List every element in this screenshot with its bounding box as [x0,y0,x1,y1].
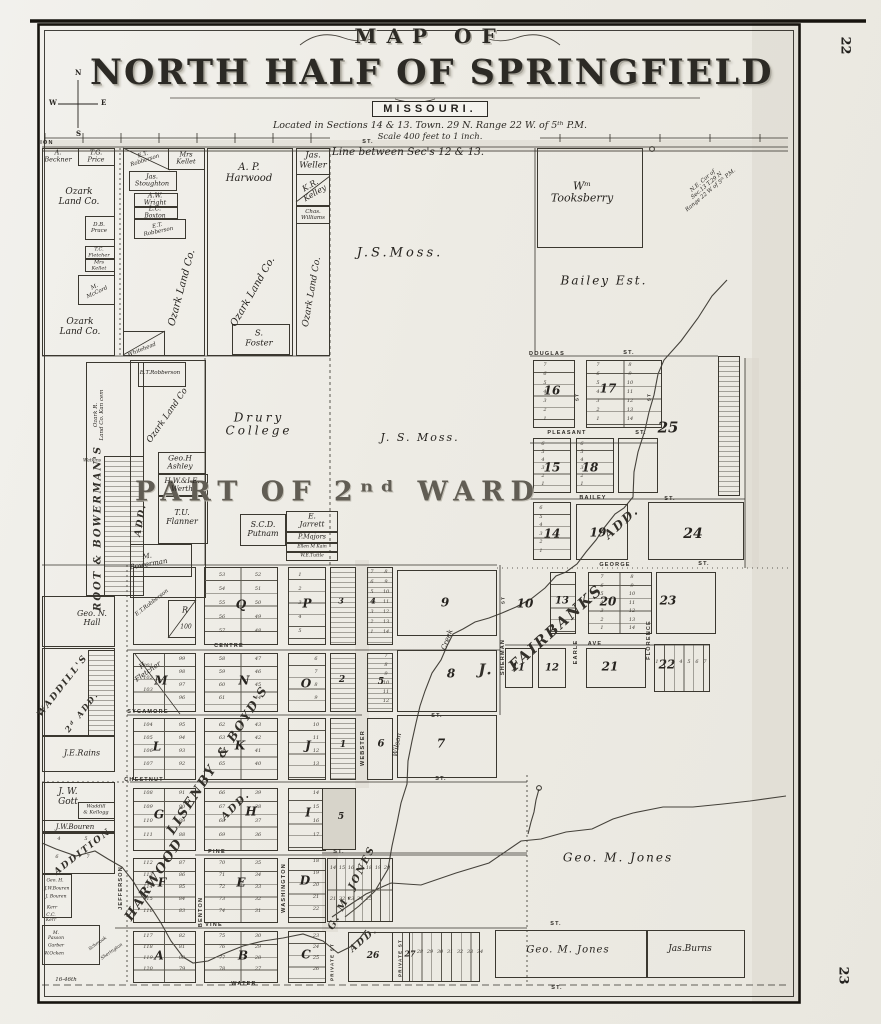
block-label: B [238,949,248,962]
lot-number: 30 [255,934,261,940]
street-label: VINE [205,922,223,928]
block-outline [204,858,278,923]
lot-number: 6 [600,584,603,590]
lot-number: 1 [655,660,658,666]
lot-number: 5 [580,450,583,456]
lot-number: 2 [600,618,603,624]
block-label: I [305,806,311,819]
block-label: 14 [544,527,561,540]
lot-number: 10 [383,590,389,596]
lot-number: 5 [596,381,599,387]
lot-number: 25 [313,956,319,962]
lot-number: 29 [255,945,261,951]
lot-number: 67 [219,805,225,811]
street-label: CHESTNUT [124,777,164,783]
lot-number: 2 [539,540,542,546]
lot-number: 14 [313,791,319,797]
street-label: SYCAMORE [127,709,168,715]
lot-number: 3 [580,466,583,472]
block-label: 9 [441,596,449,609]
lot-number: 4 [539,523,542,529]
lot-number: 24 [357,897,363,903]
block-label: 1 [340,740,346,750]
lot-number: 72 [219,885,225,891]
owner-label: J.W.Bouren [56,824,95,832]
lot-number: 6 [370,580,373,586]
map-title-block: MAP OF NORTH HALF OF SPRINGFIELD MISSOUR… [90,24,770,142]
lot-number: 10 [383,681,389,687]
lot-number: 11 [629,601,635,607]
lot-number: 23 [313,934,319,940]
owner-label: C.C. Kerr [46,913,56,923]
lot-number: 59 [219,670,225,676]
owner-label: S. Foster [245,329,272,348]
compass-south-label: S [76,129,81,138]
page-number-top: 22 [838,36,853,54]
owner-label: T.U. Flanner [166,509,198,527]
street-label: AVE [588,641,603,647]
lot-number: 3 [298,601,301,607]
block-label: J [305,739,311,752]
owner-label: Jas. Stoughton [135,174,169,189]
lot-number: 9 [630,584,633,590]
lot-number: 80 [179,956,185,962]
street-label: ST [574,393,579,401]
lot-number: 38 [255,805,261,811]
lot-number: 55 [219,601,225,607]
lot-number: 77 [219,956,225,962]
block-outline [397,650,497,712]
lot-number: 105 [143,736,153,742]
lot-number: 12 [383,699,389,705]
lot-number: 103 [143,688,153,694]
owner-label: L.C. Boxton [144,206,165,219]
lot-number: 4 [541,458,544,464]
lot-number: 109 [143,805,153,811]
lot-number: 115 [143,897,153,903]
lot-number: 6 [55,855,58,861]
lot-number: 13 [629,618,635,624]
lot-number: 5 [541,450,544,456]
block-label: 3 [338,597,344,606]
owner-label: T.G. Price [87,150,104,165]
owner-label: Bailey Est. [561,274,648,287]
block-label: 10 [517,597,534,610]
block-label: A [154,949,163,962]
owner-label: Ozark R. Land Co. Kan cem [93,390,105,441]
lot-number: 6 [543,372,546,378]
block-outline [397,715,497,778]
owner-label: Ellen M Kain [297,544,327,549]
lot-number: 46 [255,670,261,676]
lot-number: 19 [375,866,381,872]
lot-number: 3 [539,532,542,538]
street-label: PRIVATE ST [397,939,402,977]
lot-number: 70 [219,861,225,867]
lot-number: 112 [143,861,153,867]
lot-number: 3 [543,399,546,405]
lot-number: 17 [357,866,363,872]
lot-number: 79 [179,967,185,973]
lot-number: 66 [219,791,225,797]
lot-number: 1 [370,630,373,636]
owner-label: P.Majors [298,533,326,540]
owner-label: Geo. M. Jones [563,851,673,864]
lot-number: 10 [313,723,319,729]
lot-number: 81 [179,945,185,951]
lot-number: 4 [298,615,301,621]
owner-label: Geo. M. Jones [526,944,609,955]
lot-number: 5 [687,660,690,666]
lot-number: 4 [543,390,546,396]
lot-number: 23 [348,897,354,903]
owner-label: A. P. Harwood [226,162,272,184]
lot-number: 9 [384,580,387,586]
street-label: SHERMAN [500,639,506,675]
lot-number: 9 [628,372,631,378]
lot-number: 9 [314,696,317,702]
block-label: M [154,674,167,687]
owner-label: J. S. Moss. [380,432,459,444]
lot-number: 62 [219,723,225,729]
lot-number: 111 [143,833,153,839]
lot-number: 13 [313,762,319,768]
lot-number: 76 [219,945,225,951]
block-label: 15 [544,461,561,474]
lot-number: 113 [143,873,153,879]
lot-number: 12 [313,749,319,755]
lot-number: 22 [339,897,345,903]
lot-number: 14 [330,866,336,872]
street-label: ST. [623,350,635,356]
lot-number: 8 [630,575,633,581]
block-outline [330,567,356,645]
lot-number: 2 [298,587,301,593]
lot-number: 106 [143,749,153,755]
lot-number: 5 [543,381,546,387]
lot-number: 21 [330,897,336,903]
owner-label: Kerr [47,905,57,910]
lot-number: 4 [580,458,583,464]
lot-number: 7 [596,363,599,369]
lot-number: 42 [255,736,261,742]
block-label: 12 [545,662,559,673]
lot-number: 18 [313,859,319,865]
street-label: ION [40,140,53,146]
lot-number: 20 [384,866,390,872]
map-scale-note: Scale 400 feet to 1 inch. [90,132,770,142]
lot-number: 91 [179,791,185,797]
lot-number: 85 [179,885,185,891]
street-label: ST [646,393,651,401]
lot-number: 6 [580,442,583,448]
street-label: PINE [208,849,226,855]
block-label: 5 [338,812,344,822]
lot-number: 6 [314,657,317,663]
owner-label: Geo. N. Hall [77,610,107,628]
lot-number: 47 [255,657,261,663]
lot-number: 12 [627,399,633,405]
lot-number: 68 [219,819,225,825]
lot-number: 33 [255,885,261,891]
lot-number: 92 [179,762,185,768]
addition-label: J. [478,662,493,679]
street-label: ST. [435,776,447,782]
lot-number: 65 [219,762,225,768]
lot-number: 52 [255,573,261,579]
owner-label: Chas. Williams [301,209,325,221]
lot-number: 33 [467,950,473,956]
street-label: FLORENCE [646,620,652,660]
owner-label: Wᵐ Tooksberry [551,181,613,206]
map-subtitle-state: MISSOURI. [90,97,770,117]
lot-number: 84 [179,897,185,903]
lot-number: 61 [219,696,225,702]
owner-label: J.W.Bouren [45,886,70,891]
lot-number: 58 [219,657,225,663]
lot-number: 11 [313,736,319,742]
street-label: WEBSTER [360,730,366,766]
lot-number: 89 [179,819,185,825]
lot-number: 18 [366,866,372,872]
lot-number: 57 [219,629,225,635]
lot-number: 17 [313,833,319,839]
owner-label: Mrs Kellet [176,152,195,167]
lot-number: 4 [57,837,60,843]
block-label: 18 [582,461,599,474]
lot-number: 99 [179,657,185,663]
lot-number: 6 [695,660,698,666]
lot-number: 25 [366,897,372,903]
lot-number: 49 [255,615,261,621]
street-label: WATER [231,981,256,987]
lot-number: 69 [219,833,225,839]
block-label: 6 [378,738,385,749]
lot-number: 1 [600,626,603,632]
lot-number: 73 [219,897,225,903]
lot-number: 40 [255,762,261,768]
lot-number: 22 [313,907,319,913]
lot-number: 104 [143,723,153,729]
map-location-note: Located in Sections 14 & 13. Town. 29 N.… [90,120,770,131]
lot-number: 14 [627,417,633,423]
owner-label: J. W. Gott [58,787,78,807]
street-label: ST. [431,713,443,719]
lot-number: 3 [600,609,603,615]
lot-number: 14 [629,626,635,632]
lot-number: 1 [543,417,546,423]
owner-label: J.E.Rains [64,750,100,759]
owner-label: Jas. Weller [299,151,327,170]
lot-number: 32 [255,897,261,903]
lot-number: 2 [596,408,599,414]
lot-number: 102 [143,676,153,682]
lot-number: 110 [143,819,153,825]
compass-west-label: W [49,98,57,107]
lot-number: 8 [384,663,387,669]
lot-number: 3 [671,660,674,666]
owner-label: Ozark Land Co. [59,187,100,207]
owner-label: D.B. Prace [91,222,107,234]
lot-number: 11 [383,690,389,696]
street-label: ST. [551,985,563,991]
owner-label: Garber [48,943,64,948]
lot-number: 20 [313,883,319,889]
owner-label: 100 [180,625,191,632]
owner-label: Line between Sec's 12 & 13. [332,147,484,159]
block-outline [288,858,326,923]
lot-number: 75 [219,934,225,940]
lot-number: 19 [313,871,319,877]
lot-number: 41 [255,749,261,755]
block-label: 17 [600,382,617,395]
lot-number: 98 [179,670,185,676]
street-label: ST. [550,921,562,927]
owner-label: T.C. Fletcher [88,247,109,258]
lot-number: 5 [84,837,87,843]
lot-number: 54 [219,587,225,593]
owner-label: M. Paxson [48,931,64,941]
lot-number: 16 [313,819,319,825]
lot-number: 90 [179,805,185,811]
lot-number: 93 [179,749,185,755]
lot-number: 56 [219,615,225,621]
lot-number: 53 [219,573,225,579]
owner-label: A. Beckner [44,150,71,165]
owner-label: E. Jarrett [299,513,324,530]
street-label: WASHINGTON [281,863,287,913]
lot-number: 94 [179,736,185,742]
lot-number: 8 [314,683,317,689]
street-label: PRIVATE ST [329,943,334,981]
block-label: O [301,677,311,690]
lot-number: 116 [143,909,153,915]
owner-label: 16-46th [55,977,77,983]
block-label: 7 [437,737,445,750]
atlas-page: MAP OF NORTH HALF OF SPRINGFIELD MISSOUR… [0,0,881,1024]
lot-number: 6 [539,506,542,512]
lot-number: 7 [86,855,89,861]
lot-number: 5 [370,590,373,596]
map-title: NORTH HALF OF SPRINGFIELD [90,52,770,93]
owner-label: W.E.Tuttle [300,553,324,558]
lot-number: 82 [179,934,185,940]
lot-number: 117 [143,934,153,940]
lot-number: 71 [219,873,225,879]
block-label: D [300,874,310,887]
lot-number: 4 [679,660,682,666]
owner-label: Drury College [226,412,293,439]
lot-number: 60 [219,683,225,689]
block-label: Q [236,598,246,611]
lot-number: 27 [255,967,261,973]
lot-number: 7 [370,570,373,576]
lot-number: 34 [477,950,483,956]
lot-number: 10 [627,381,633,387]
owner-label: E.T.Robberson [140,370,180,376]
lot-number: 8 [384,570,387,576]
lot-number: 101 [143,664,153,670]
state-label: MISSOURI. [372,101,487,117]
street-label: BAILEY [579,495,606,501]
lot-number: 2 [543,408,546,414]
owner-label: S.C.D. Putnam [247,521,278,539]
page-number-bottom: 23 [836,966,851,984]
block-outline [618,438,658,493]
block-label: 26 [367,951,380,961]
lot-number: 28 [417,950,423,956]
lot-number: 50 [255,601,261,607]
block-label: 24 [683,527,702,543]
block-label: 2 [339,675,345,685]
compass-north-label: N [75,68,81,77]
lot-number: 7 [600,575,603,581]
lot-number: 13 [627,408,633,414]
lot-number: 11 [627,390,633,396]
lot-number: 4 [600,601,603,607]
lot-number: 24 [313,945,319,951]
lot-number: 83 [179,909,185,915]
owner-label: Jas.Burns [668,944,712,954]
street-label: DOUGLAS [529,351,565,357]
owner-label: H.W.&I.E. Werth [164,478,199,494]
owner-label: R [182,607,188,616]
street-label: ST. [635,430,647,436]
lot-number: 1 [539,549,542,555]
owner-label: Geo. H. [46,878,63,883]
lot-number: 34 [255,873,261,879]
creek-path [332,796,786,917]
lot-number: 119 [143,956,153,962]
lot-number: 6 [596,372,599,378]
lot-number: 86 [179,873,185,879]
lot-number: 10 [629,592,635,598]
block-label: N [239,674,250,687]
lot-number: 1 [580,482,583,488]
lot-number: 29 [427,950,433,956]
lot-number: 16 [348,866,354,872]
lot-number: 4 [596,390,599,396]
lot-number: 2 [370,620,373,626]
lot-number: 11 [383,600,389,606]
block-label: 21 [602,660,619,673]
lot-number: 15 [313,805,319,811]
block-label: G [154,808,164,821]
lot-number: 37 [255,819,261,825]
lot-number: 96 [179,696,185,702]
lot-number: 1 [298,573,301,579]
lot-number: 108 [143,791,153,797]
street-label: ST [500,596,505,604]
block-label: 8 [447,667,455,680]
lot-number: 114 [143,885,153,891]
lot-number: 88 [179,833,185,839]
lot-number: 6 [541,442,544,448]
lot-number: 7 [314,670,317,676]
lot-number: 39 [255,791,261,797]
lot-number: 120 [143,967,153,973]
lot-number: 3 [596,399,599,405]
block-label: 25 [658,420,679,437]
street-label: BENTON [198,897,204,927]
lot-number: 12 [629,609,635,615]
block-label: 27 [404,950,415,959]
street-label: JEFFERSON [118,866,124,910]
lot-number: 7 [384,654,387,660]
lot-number: 118 [143,945,153,951]
lot-number: 2 [663,660,666,666]
lot-number: 14 [383,630,389,636]
